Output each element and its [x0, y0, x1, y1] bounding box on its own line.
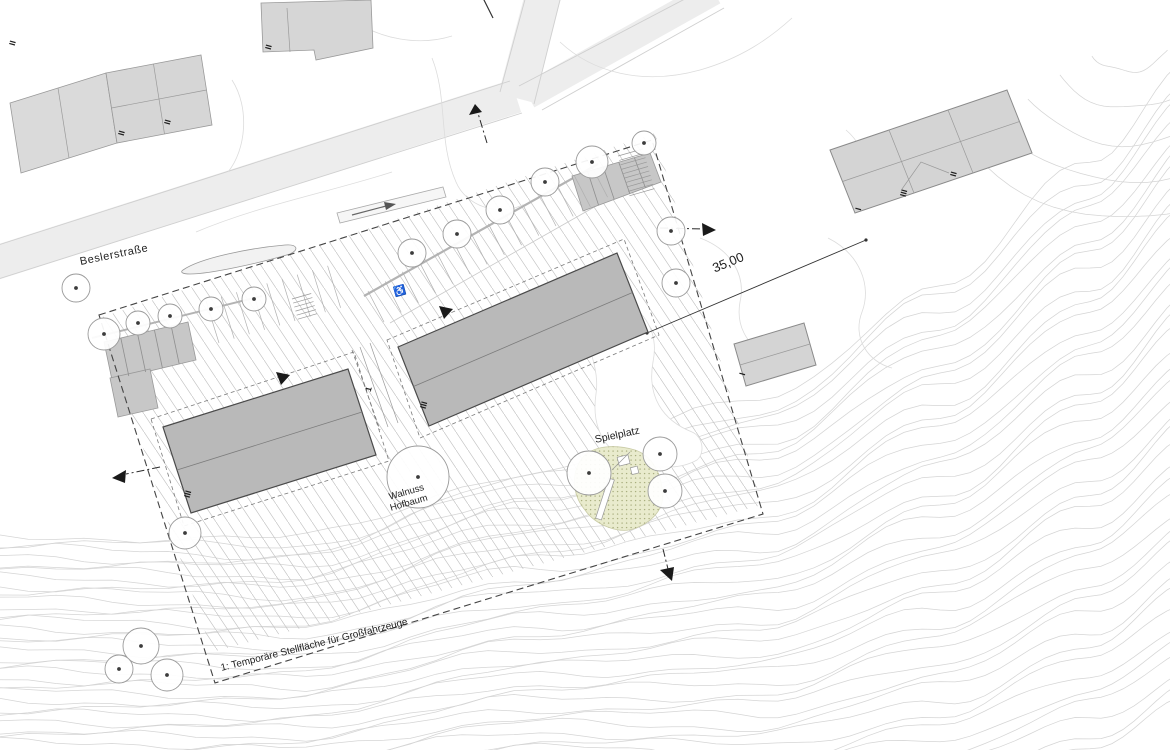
site-plan-drawing	[0, 0, 1170, 750]
survey-tick	[483, 0, 493, 18]
existing-building-north	[261, 0, 373, 60]
site-plan: Beslerstraße 35,00 Spielplatz Walnuss Ho…	[0, 0, 1170, 750]
